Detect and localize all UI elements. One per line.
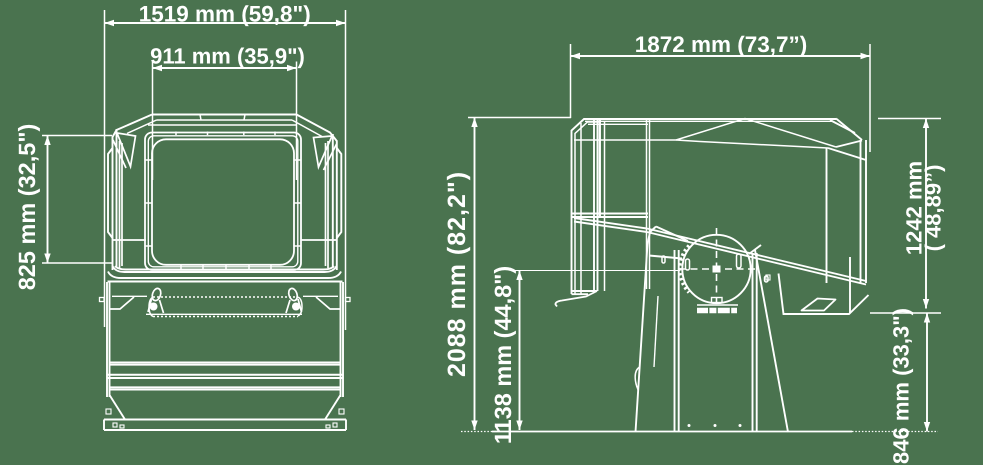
svg-text:846 mm (33,3"): 846 mm (33,3"): [888, 308, 913, 464]
svg-text:( 48,89”): ( 48,89”): [920, 165, 945, 252]
svg-text:911 mm (35,9"): 911 mm (35,9"): [150, 43, 305, 68]
svg-text:2088 mm (82,2"): 2088 mm (82,2"): [443, 171, 471, 377]
svg-text:1138 mm (44,8"): 1138 mm (44,8"): [490, 266, 516, 444]
svg-text:825 mm (32,5"): 825 mm (32,5"): [14, 124, 40, 291]
svg-text:1872 mm (73,7”): 1872 mm (73,7”): [635, 32, 808, 57]
